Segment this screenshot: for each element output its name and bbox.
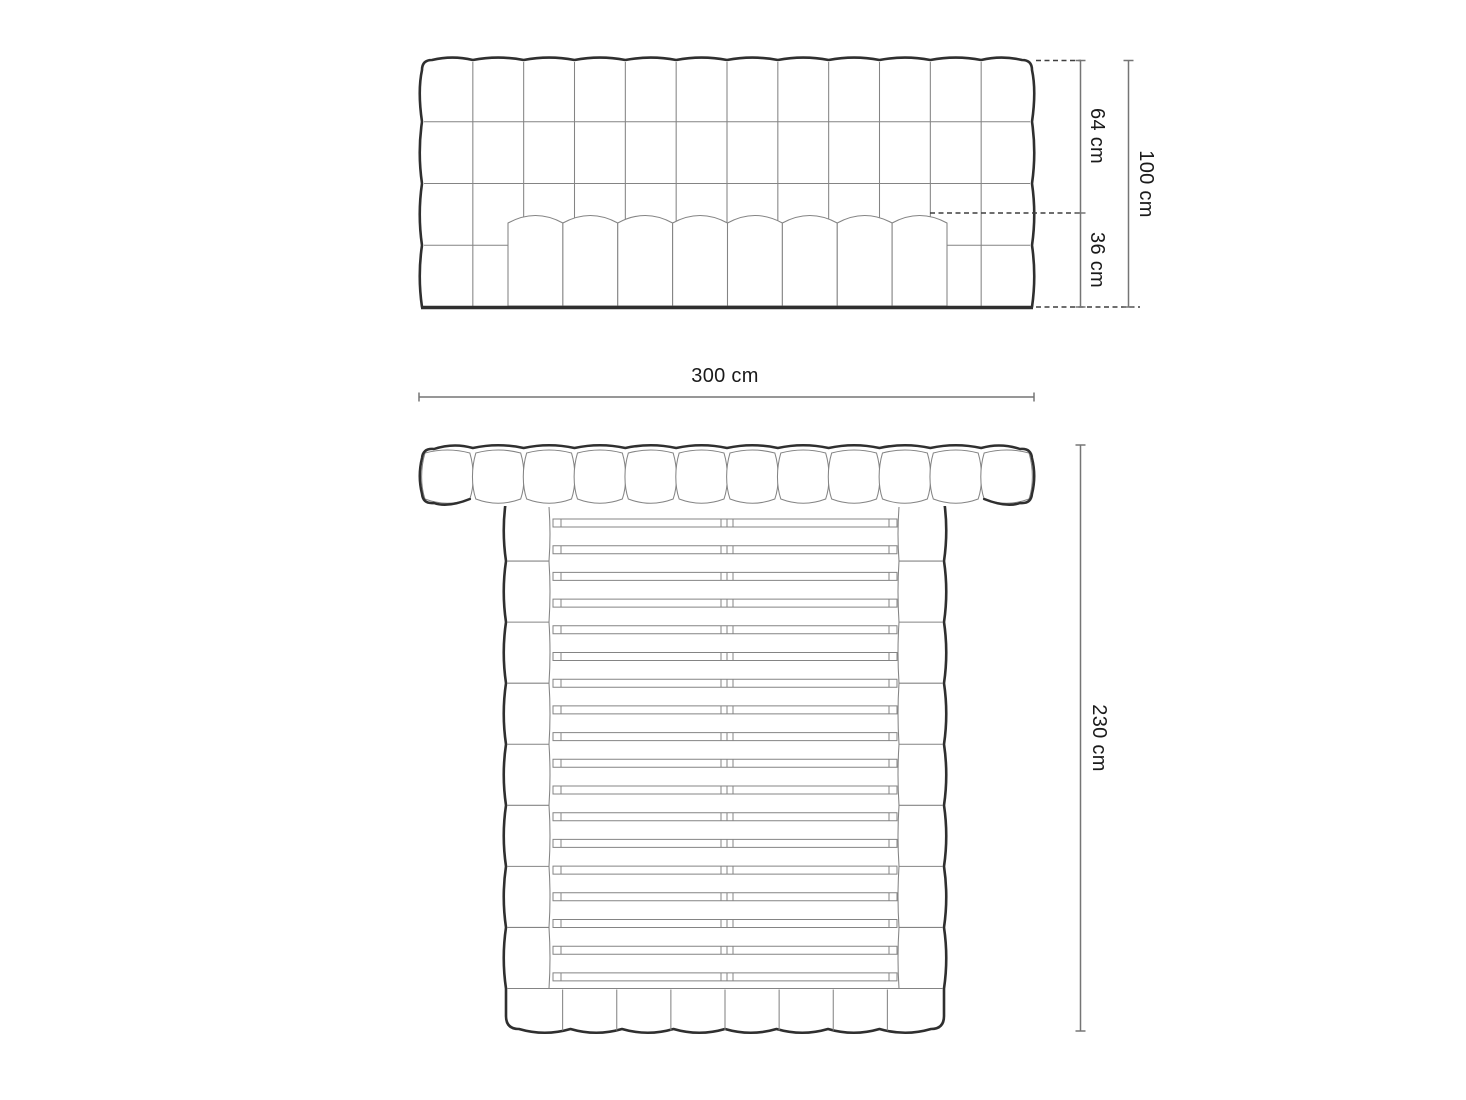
top-headboard-pillow (879, 450, 931, 503)
slat (553, 839, 897, 847)
top-headboard-pillow (574, 450, 626, 503)
top-headboard-pillow (472, 450, 524, 503)
mattress-channel (728, 216, 783, 307)
dimension-label-headboard-upper-height: 64 cm (1087, 108, 1107, 164)
slat (553, 519, 897, 527)
slat (553, 572, 897, 580)
slat (553, 546, 897, 554)
dimension-label-length: 230 cm (1089, 704, 1109, 771)
slat (553, 706, 897, 714)
mattress-channel (618, 216, 673, 307)
bed-technical-diagram: 64 cm 36 cm 100 cm 300 cm 230 cm (0, 0, 1466, 1100)
top-view (420, 445, 1035, 1033)
slat (553, 973, 897, 981)
slat (553, 679, 897, 687)
top-headboard-pillow (727, 450, 779, 503)
top-headboard-pillow (930, 450, 982, 503)
top-headboard-pillow (828, 450, 880, 503)
slat (553, 866, 897, 874)
slat (553, 813, 897, 821)
mattress-channel (892, 216, 947, 307)
dimension-label-headboard-lower-height: 36 cm (1087, 232, 1107, 288)
dimension-label-total-height: 100 cm (1136, 150, 1156, 217)
top-headboard-pillow (523, 450, 575, 503)
mattress-channel (508, 216, 563, 307)
slat (553, 759, 897, 767)
slat (553, 653, 897, 661)
mattress-channel (837, 216, 892, 307)
slat (553, 599, 897, 607)
slat (553, 893, 897, 901)
slat (553, 920, 897, 928)
mattress-channel (673, 216, 728, 307)
top-headboard-pillow (676, 450, 728, 503)
diagram-canvas (0, 0, 1466, 1100)
mattress-channel (563, 216, 618, 307)
slat (553, 733, 897, 741)
front-view (420, 58, 1035, 308)
dimension-label-width: 300 cm (691, 366, 758, 386)
slat (553, 626, 897, 634)
top-headboard-pillow (777, 450, 829, 503)
slat (553, 946, 897, 954)
top-headboard-pillow (981, 450, 1033, 503)
top-headboard-pillow (625, 450, 677, 503)
top-headboard-pillow (422, 450, 474, 503)
mattress-channel (782, 216, 837, 307)
width-dimension (419, 393, 1034, 402)
length-dimension (1076, 445, 1086, 1031)
slat (553, 786, 897, 794)
